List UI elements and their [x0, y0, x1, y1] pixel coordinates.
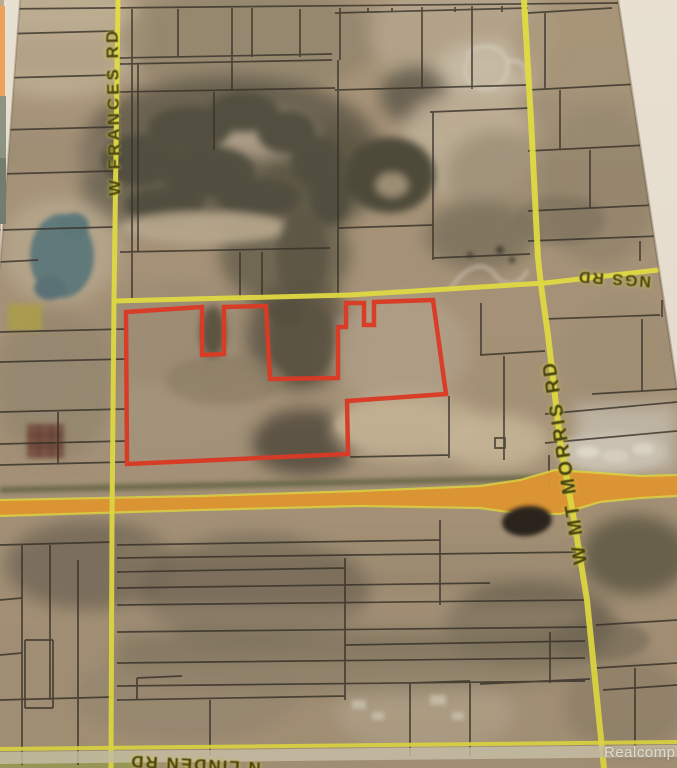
road-label-frances: W FRANCES RD	[103, 28, 126, 197]
background-object-sliver	[0, 96, 6, 158]
table-edge-strip	[0, 6, 5, 102]
background-object-sliver	[0, 158, 6, 224]
aerial-map-canvas	[0, 0, 677, 768]
aerial-parcel-map-photo: W FRANCES RD NGS RD W MT MORRIS RD N LIN…	[0, 0, 677, 768]
realcomp-watermark: Realcomp	[604, 744, 676, 761]
